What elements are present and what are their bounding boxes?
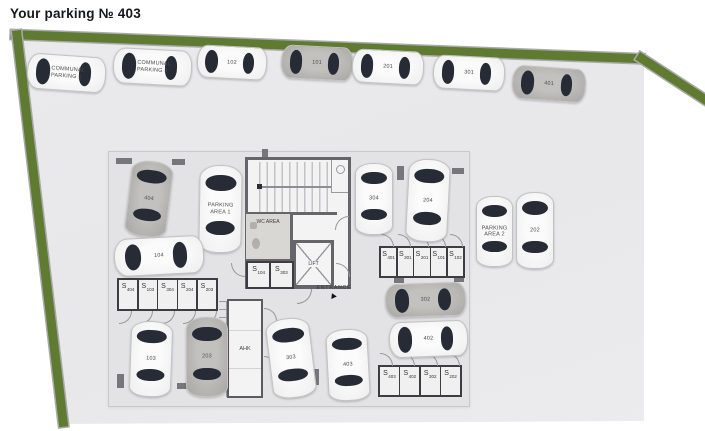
car-102: 102	[196, 44, 268, 81]
car-label: COMMUNAL PARKING 1	[51, 65, 83, 80]
car-communal-parking-2: COMMUNAL PARKING 2	[112, 47, 193, 87]
storage-unit-s402: S402	[400, 367, 419, 395]
page-title: Your parking № 403	[10, 6, 141, 21]
car-402: 402	[388, 320, 468, 359]
lift-room: LIFT	[293, 240, 334, 288]
car-label: 302	[410, 296, 442, 304]
ahk-room: AHK	[227, 299, 263, 398]
car-401: 401	[511, 64, 587, 103]
car-label: PARKING AREA 2	[478, 225, 511, 238]
storage-unit-s303: S303	[271, 263, 292, 287]
fixture-icon	[336, 165, 345, 174]
car-label: 203	[188, 354, 226, 361]
car-label: 304	[357, 196, 391, 203]
wall-stub	[172, 159, 185, 165]
wall-stub	[117, 374, 124, 388]
parking-plan-page: Your parking № 403 WC AREA LIFT ENTRANCE…	[0, 0, 705, 431]
toilet-icon	[252, 238, 260, 249]
car-label: 401	[534, 80, 563, 89]
car-label: 301	[455, 69, 483, 77]
car-label: 101	[303, 59, 331, 67]
car-label: 201	[374, 63, 402, 71]
storage-row-building: S104 S303	[246, 261, 294, 289]
car-302: 302	[384, 282, 466, 319]
ahk-divider	[229, 368, 261, 369]
car-403: 403	[325, 328, 371, 402]
car-label: 404	[130, 193, 168, 204]
perimeter-wall-top-right	[635, 52, 705, 110]
wall-stub	[394, 278, 404, 283]
lift-label: LIFT	[307, 261, 319, 267]
car-label: COMMUNAL PARKING 2	[137, 60, 168, 75]
car-label: 202	[518, 227, 552, 234]
car-label: PARKING AREA 1	[201, 202, 240, 216]
ahk-divider	[229, 330, 261, 331]
storage-unit-s404: S404	[119, 280, 137, 309]
car-202: 202	[516, 192, 554, 269]
car-103: 103	[129, 320, 174, 397]
storage-unit-s101: S101	[431, 248, 446, 276]
storage-unit-s204: S204	[178, 280, 196, 309]
car-301: 301	[432, 54, 506, 92]
storage-unit-s401: S401	[381, 248, 396, 276]
sink-icon	[250, 222, 257, 229]
storage-row-right: S401 S301 S201 S101 S102	[379, 246, 465, 278]
car-communal-parking-1: COMMUNAL PARKING 1	[26, 52, 107, 93]
ahk-label: AHK	[229, 346, 261, 352]
storage-unit-s104: S104	[248, 263, 269, 287]
storage-unit-s304: S304	[158, 280, 176, 309]
car-101: 101	[280, 44, 354, 82]
car-label: 104	[141, 252, 177, 260]
storage-unit-s201: S201	[414, 248, 429, 276]
car-104: 104	[113, 235, 205, 278]
car-label: 303	[271, 352, 311, 363]
storage-row-bottom: S403 S402 S302 S202	[378, 365, 462, 397]
wall-stub	[397, 166, 404, 180]
storage-row-left: S404 S103 S304 S204 S203	[117, 278, 218, 311]
car-label: 103	[132, 355, 170, 363]
car-parking-area-2: PARKING AREA 2	[476, 196, 513, 267]
storage-unit-s103: S103	[139, 280, 157, 309]
stairs	[259, 162, 333, 213]
car-204: 204	[405, 158, 451, 243]
storage-unit-s102: S102	[448, 248, 463, 276]
car-parking-area-1: PARKING AREA 1	[198, 165, 243, 254]
wall-stub	[116, 158, 132, 164]
storage-unit-s403: S403	[380, 367, 399, 395]
storage-unit-s202: S202	[441, 367, 460, 395]
entrance-label: ENTRANCE	[308, 285, 360, 291]
car-label: 102	[218, 58, 246, 66]
storage-unit-s301: S301	[398, 248, 413, 276]
car-304: 304	[355, 163, 393, 235]
storage-unit-s203: S203	[198, 280, 216, 309]
car-203: 203	[186, 317, 228, 397]
storage-unit-s302: S302	[421, 367, 440, 395]
stair-rail-post	[257, 184, 262, 189]
car-201: 201	[351, 48, 425, 86]
wall-stub	[452, 168, 464, 174]
car-label: 204	[409, 196, 447, 205]
car-label: 402	[413, 335, 444, 343]
stair-rail	[261, 186, 331, 188]
car-label: 403	[329, 361, 367, 370]
